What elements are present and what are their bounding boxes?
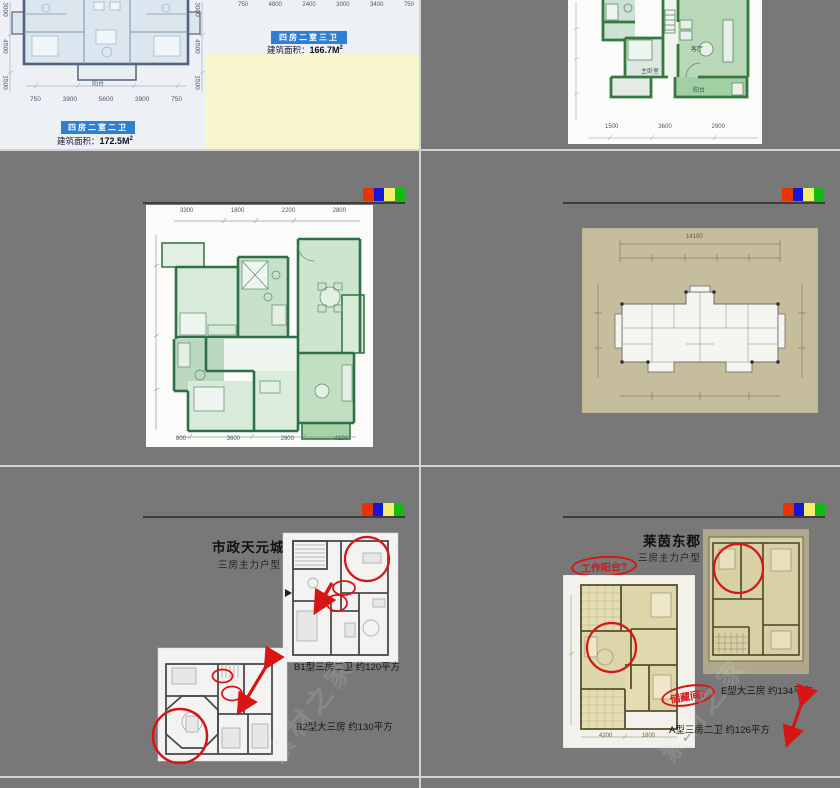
logo-color-squares: [362, 503, 404, 516]
balcony-label: 阳台: [92, 79, 104, 88]
dim-label: 1800: [642, 733, 655, 739]
dim-labels-left: 300045001500: [0, 6, 10, 86]
dim-label: 750: [171, 96, 182, 103]
logo-yellow-square: [803, 188, 814, 201]
dim-label: 2400: [302, 2, 315, 8]
logo-yellow-square: [383, 503, 394, 516]
logo-red-square: [782, 188, 793, 201]
dim-label: 3900: [135, 96, 149, 103]
area-text-1: 建筑面积：172.5M2: [57, 135, 133, 147]
dim-label: 2800: [333, 208, 346, 214]
logo-color-squares: [782, 188, 824, 201]
dim-labels-top-strip: 7504800240030003400750: [238, 2, 414, 8]
logo-blue-square: [373, 503, 384, 516]
logo-green-square: [815, 503, 826, 516]
dim-label: 750: [404, 2, 414, 8]
dim-label: 3600: [227, 436, 240, 442]
room-label-balcony: 阳台: [693, 85, 705, 94]
dim-label: 2900: [281, 436, 294, 442]
logo-green-square: [814, 188, 825, 201]
area-value: 172.5M: [100, 136, 130, 146]
dim-label: 1500: [605, 124, 618, 130]
dim-label: 4200: [599, 733, 612, 739]
logo-red-square: [363, 188, 374, 201]
header-rule: [143, 516, 405, 518]
header-rule: [563, 202, 825, 204]
plan-type-label-1: 四房二室二卫: [61, 121, 135, 134]
logo-color-squares: [783, 503, 825, 516]
floorplan-e: [703, 529, 809, 674]
plan-type-text: 四房二室二卫: [68, 122, 128, 133]
logo-red-square: [362, 503, 373, 516]
slide-2[interactable]: 主卧室 客厅 阳台 150036002900: [421, 0, 840, 149]
annotation-text: 工作阳台?: [581, 558, 628, 575]
slide-6[interactable]: 莱茵东郡 三房主力户型 工作阳台?: [421, 467, 840, 776]
dim-label: 4500: [194, 39, 201, 53]
slide-4[interactable]: 14100: [421, 151, 840, 465]
dim-label: 750: [238, 2, 248, 8]
yellow-note-box: [205, 54, 419, 149]
dim-label: 5600: [99, 96, 113, 103]
dim-labels-bottom: 150036002900: [605, 124, 725, 130]
floorplan-green-image: [568, 0, 762, 144]
floorplan-tan-building: [582, 228, 818, 413]
logo-yellow-square: [804, 503, 815, 516]
dim-label: 4800: [269, 2, 282, 8]
dim-label: 1800: [231, 208, 244, 214]
dim-label: 2900: [712, 124, 725, 130]
slide-sorter-grid: 300045001500 300045001500 75039005600390…: [0, 0, 840, 788]
dim-label: 750: [30, 96, 41, 103]
dim-labels-bottom: 42001800: [599, 733, 655, 739]
area-sup: 2: [340, 45, 343, 51]
logo-yellow-square: [384, 188, 395, 201]
logo-green-square: [394, 503, 405, 516]
dim-label: 3000: [194, 2, 201, 16]
area-prefix: 建筑面积：: [57, 136, 100, 146]
dim-labels-bottom: 800360029004100: [176, 436, 348, 442]
dim-label: 1500: [2, 75, 9, 89]
logo-blue-square: [374, 188, 385, 201]
project-title: 莱茵东郡: [643, 530, 701, 550]
dim-labels-bottom: 750390056003900750: [30, 96, 182, 103]
slide-1[interactable]: 300045001500 300045001500 75039005600390…: [0, 0, 419, 149]
dim-label: 3600: [658, 124, 671, 130]
project-subtitle: 三房主力户型: [218, 557, 281, 571]
plan-type-text: 四房二室三卫: [279, 32, 339, 43]
red-double-arrow: [780, 698, 810, 746]
slide-3[interactable]: 3300180022002800 800360029004100: [0, 151, 419, 465]
header-rule: [563, 516, 825, 518]
room-label-living: 客厅: [691, 44, 703, 53]
plan-type-label-2: 四房二室三卫: [271, 31, 347, 44]
logo-blue-square: [794, 503, 805, 516]
project-title: 市政天元城: [212, 536, 285, 556]
dim-label: 3000: [2, 2, 9, 16]
dim-label: 3300: [180, 208, 193, 214]
dim-label: 1500: [194, 75, 201, 89]
dim-label: 4100: [335, 436, 348, 442]
total-dim-label: 14100: [686, 234, 703, 240]
floorplan-green-large: [146, 205, 373, 447]
area-sup: 2: [130, 136, 133, 142]
floorplan-blue-fourbed: [6, 0, 206, 110]
slide-5[interactable]: 市政天元城 三房主力户型: [0, 467, 419, 776]
logo-blue-square: [793, 188, 804, 201]
dim-label: 3400: [370, 2, 383, 8]
dim-label: 2200: [282, 208, 295, 214]
dim-label: 3900: [63, 96, 77, 103]
logo-green-square: [395, 188, 406, 201]
header-rule: [143, 202, 405, 204]
room-label-master: 主卧室: [641, 66, 659, 75]
logo-color-squares: [363, 188, 405, 201]
dim-label: 800: [176, 436, 186, 442]
dim-labels-right: 300045001500: [192, 6, 202, 86]
dim-label: 4500: [2, 39, 9, 53]
dim-labels-top: 3300180022002800: [180, 208, 346, 214]
project-subtitle: 三房主力户型: [638, 550, 701, 564]
logo-red-square: [783, 503, 794, 516]
dim-label: 3000: [336, 2, 349, 8]
floorplan-b1: [283, 533, 398, 662]
